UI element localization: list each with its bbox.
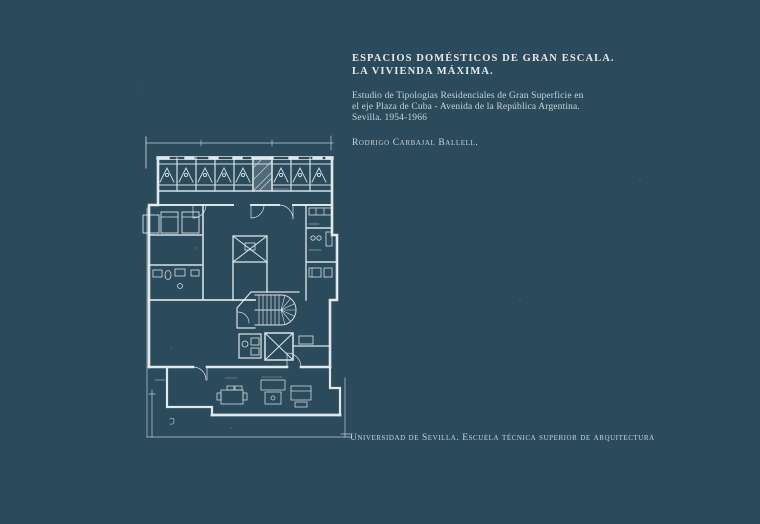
- floor-plan-drawing: [0, 0, 760, 524]
- plan-wardrobe-band: [158, 158, 332, 191]
- subtitle-block: Estudio de Tipologías Residenciales de G…: [352, 91, 584, 124]
- page-title-line1: ESPACIOS DOMÉSTICOS DE GRAN ESCALA.: [352, 52, 615, 65]
- subtitle-line1: Estudio de Tipologías Residenciales de G…: [352, 91, 584, 102]
- plan-stair: [237, 292, 299, 328]
- institution-footer: Universidad de Sevilla. Escuela técnica …: [350, 433, 655, 443]
- plan-label-scribbles: [155, 189, 319, 424]
- subtitle-line2: el eje Plaza de Cuba - Avenida de la Rep…: [352, 102, 584, 113]
- title-block: ESPACIOS DOMÉSTICOS DE GRAN ESCALA. LA V…: [352, 52, 615, 78]
- author-name: Rodrigo Carbajal Ballell.: [352, 138, 478, 148]
- page-title-line2: LA VIVIENDA MÁXIMA.: [352, 65, 615, 78]
- plan-patio: [233, 236, 267, 300]
- thesis-cover-page: ESPACIOS DOMÉSTICOS DE GRAN ESCALA. LA V…: [0, 0, 760, 524]
- subtitle-line3: Sevilla. 1954-1966: [352, 113, 584, 124]
- plan-left-rooms: [143, 205, 255, 300]
- plan-elevator-core: [193, 333, 330, 380]
- plan-living-furniture: [217, 377, 311, 407]
